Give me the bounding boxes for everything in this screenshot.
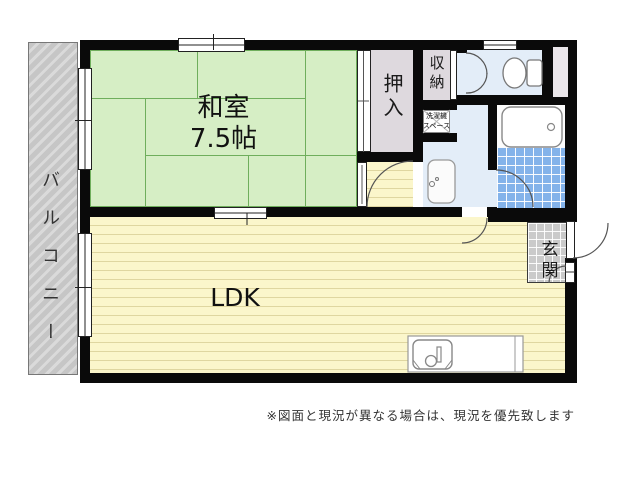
- balcony-label: バルコニー: [36, 150, 62, 380]
- entrance-door-leaf: [566, 221, 575, 259]
- floor-plan: 和室 7.5帖 LDK 押入 収納 洗濯機 スペース 玄関 バルコニー ※図面と…: [0, 0, 640, 480]
- window-ldk-left: [78, 233, 92, 337]
- wall-laundry-bottom: [423, 133, 457, 142]
- shuno-door: [450, 50, 457, 100]
- wall-toilet-stub: [457, 40, 467, 53]
- laundry-label-line1: 洗濯機: [422, 112, 451, 122]
- ldk-room: [90, 217, 565, 373]
- disclaimer-note: ※図面と現況が異なる場合は、現況を優先致します: [80, 405, 575, 424]
- bathroom-tile-floor: [497, 147, 565, 208]
- ldk-label: LDK: [170, 283, 300, 313]
- fusuma-oshiire: [357, 50, 371, 152]
- shuno-label: 収納: [421, 52, 451, 96]
- wall-right-upper: [565, 105, 577, 212]
- wall-toilet-bottom: [450, 95, 547, 105]
- washroom-door-gap: [462, 207, 487, 217]
- wall-bath-bottom: [488, 208, 577, 222]
- washitsu-size: 7.5帖: [90, 124, 357, 155]
- laundry-label-line2: スペース: [422, 122, 451, 132]
- sliding-door-washitsu-hall: [357, 162, 367, 207]
- washitsu-name: 和室: [90, 93, 357, 124]
- wall-bottom: [80, 373, 577, 383]
- laundry-label: 洗濯機 スペース: [422, 112, 451, 132]
- window-washitsu-top: [178, 38, 245, 52]
- genkan-cabinet: [565, 262, 575, 283]
- pipe-space: [553, 47, 568, 97]
- window-toilet: [483, 40, 517, 50]
- tatami-seam: [197, 50, 198, 98]
- wall-oshiire-bottom: [357, 152, 423, 162]
- doorway-gap: [413, 160, 423, 207]
- washitsu-label-block: 和室 7.5帖: [90, 93, 357, 155]
- toilet-room: [455, 50, 542, 95]
- genkan-label: 玄関: [534, 236, 560, 286]
- tatami-seam: [248, 155, 249, 207]
- wall-bath-left: [488, 105, 497, 170]
- hall-nook: [367, 162, 415, 207]
- entrance-door-arc: [573, 223, 608, 258]
- oshiire-label: 押入: [378, 68, 406, 126]
- wall-washitsu-ldk: [80, 207, 497, 217]
- sliding-door-washitsu-ldk: [214, 207, 267, 219]
